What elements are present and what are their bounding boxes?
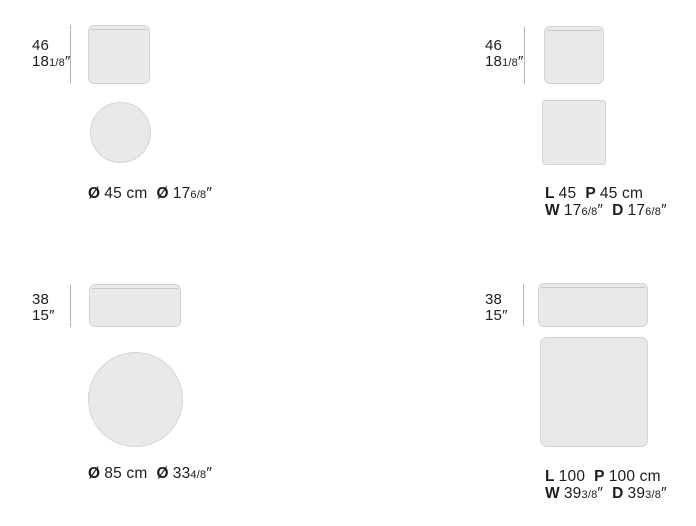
height-label: 38 15″ (485, 292, 508, 325)
side-view-shape (88, 25, 150, 84)
height-cm: 46 (485, 38, 524, 54)
height-dimension-line (70, 25, 71, 84)
dimension-diagram: 46 181/8″ Ø45 cmØ176/8″ 46 181/8″ L45P45… (0, 0, 696, 526)
top-view-circle (90, 102, 151, 163)
seam-line (91, 29, 147, 30)
side-view-shape (89, 284, 181, 327)
diameter-label: Ø85 cmØ334/8″ (88, 466, 212, 484)
size-label: L45P45 cm W176/8″D176/8″ (545, 186, 667, 220)
height-dimension-line (524, 27, 525, 84)
height-label: 46 181/8″ (485, 38, 524, 71)
size-cm-label: L100P100 cm (545, 469, 667, 485)
size-inch-label: W176/8″D176/8″ (545, 203, 667, 221)
height-inch: 15″ (485, 308, 508, 325)
seam-line (541, 287, 645, 288)
height-cm: 46 (32, 38, 71, 54)
seam-line (92, 288, 178, 289)
top-view-square (540, 337, 648, 447)
height-dimension-line (70, 285, 71, 327)
size-cm-label: L45P45 cm (545, 186, 667, 202)
diameter-icon: Ø (156, 465, 168, 482)
seam-line (547, 30, 601, 31)
side-view-shape (544, 26, 604, 84)
side-view-shape (538, 283, 648, 327)
size-label: Ø45 cmØ176/8″ (88, 186, 212, 204)
size-label: L100P100 cm W393/8″D393/8″ (545, 469, 667, 503)
height-label: 38 15″ (32, 292, 55, 325)
size-label: Ø85 cmØ334/8″ (88, 466, 212, 484)
height-label: 46 181/8″ (32, 38, 71, 71)
height-inch: 181/8″ (485, 54, 524, 71)
diameter-icon: Ø (88, 185, 100, 202)
height-inch: 181/8″ (32, 54, 71, 71)
height-inch: 15″ (32, 308, 55, 325)
diameter-icon: Ø (88, 465, 100, 482)
height-cm: 38 (32, 292, 55, 308)
top-view-circle (88, 352, 183, 447)
size-inch-label: W393/8″D393/8″ (545, 486, 667, 504)
height-cm: 38 (485, 292, 508, 308)
diameter-label: Ø45 cmØ176/8″ (88, 186, 212, 204)
diameter-icon: Ø (156, 185, 168, 202)
top-view-square (542, 100, 606, 165)
height-dimension-line (523, 284, 524, 326)
